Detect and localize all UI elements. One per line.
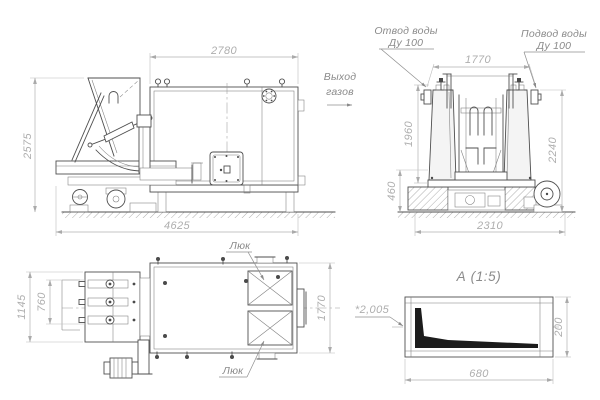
bottom-stub: [257, 353, 277, 359]
dim-1145: 1145: [16, 294, 28, 320]
water-inlet-flange: [531, 90, 541, 104]
electric-motor: [104, 358, 138, 378]
gas-outlet-note: Выход газов: [324, 71, 357, 105]
front-view: 1770 1960 460 2240 2310 Отвод воды Ду 10…: [374, 25, 587, 236]
ground-hatch: [62, 213, 335, 219]
top-stub: [255, 257, 275, 263]
dim-2780: 2780: [210, 45, 238, 57]
boiler-base-frame: [150, 185, 298, 192]
gas-note-line2: газов: [326, 86, 354, 98]
dim-2310: 2310: [476, 220, 504, 232]
plan-view: 1145 760 1770 Люк Люк: [16, 240, 340, 378]
detail-view-a: А (1:5) 680 200 *2,005: [355, 269, 571, 384]
lifting-eyebolts: [155, 79, 284, 87]
dim-1960: 1960: [403, 120, 415, 147]
inlet-label-line1: Подвод воды: [521, 28, 587, 40]
chute-head: [137, 115, 151, 127]
hatch-label-bottom: Люк: [222, 365, 244, 377]
feed-duct: [140, 168, 192, 180]
dim-2575: 2575: [22, 132, 34, 160]
support-brace: [72, 93, 101, 160]
dim-2240: 2240: [547, 136, 559, 164]
gas-note-line1: Выход: [324, 71, 357, 83]
side-view: 2780 2575 4625: [22, 45, 335, 236]
outlet-label-line1: Отвод воды: [374, 25, 437, 37]
drive-gearbox: [107, 190, 125, 208]
water-outlet-flange: [421, 90, 431, 104]
ground-hatch-right: [398, 213, 575, 219]
inlet-label-line2: Ду 100: [536, 40, 571, 52]
loading-trough: [443, 74, 517, 108]
drawing-canvas: 2780 2575 4625 Выход газов: [0, 0, 600, 400]
dim-760: 760: [36, 292, 48, 312]
dim-680: 680: [469, 368, 489, 380]
dim-1770-plan: 1770: [316, 294, 328, 321]
dim-460: 460: [386, 181, 398, 201]
water-outlet-callout: Отвод воды Ду 100: [374, 25, 437, 87]
furnace-door: [210, 152, 243, 185]
water-inlet-callout: Подвод воды Ду 100: [521, 28, 587, 88]
top-flange: [262, 89, 276, 103]
technical-drawing-sheet: 2780 2575 4625 Выход газов: [0, 0, 600, 400]
outlet-label-line2: Ду 100: [388, 37, 423, 49]
lower-bracket: [298, 176, 305, 185]
dim-200: 200: [553, 317, 565, 338]
foundation-left: [408, 187, 448, 210]
chute-column: [139, 127, 150, 173]
dim-thickness: *2,005: [355, 304, 390, 316]
hatch-label-top: Люк: [229, 240, 251, 252]
boiler-body-plan: [150, 263, 297, 353]
hook-symbol: [109, 92, 118, 104]
side-bracket: [298, 100, 304, 111]
detail-title: А (1:5): [456, 269, 502, 284]
fuel-feeder-plan: [62, 272, 150, 342]
water-jacket-left: [429, 90, 456, 180]
dim-4625: 4625: [164, 220, 191, 232]
dim-1770-front: 1770: [465, 54, 492, 66]
